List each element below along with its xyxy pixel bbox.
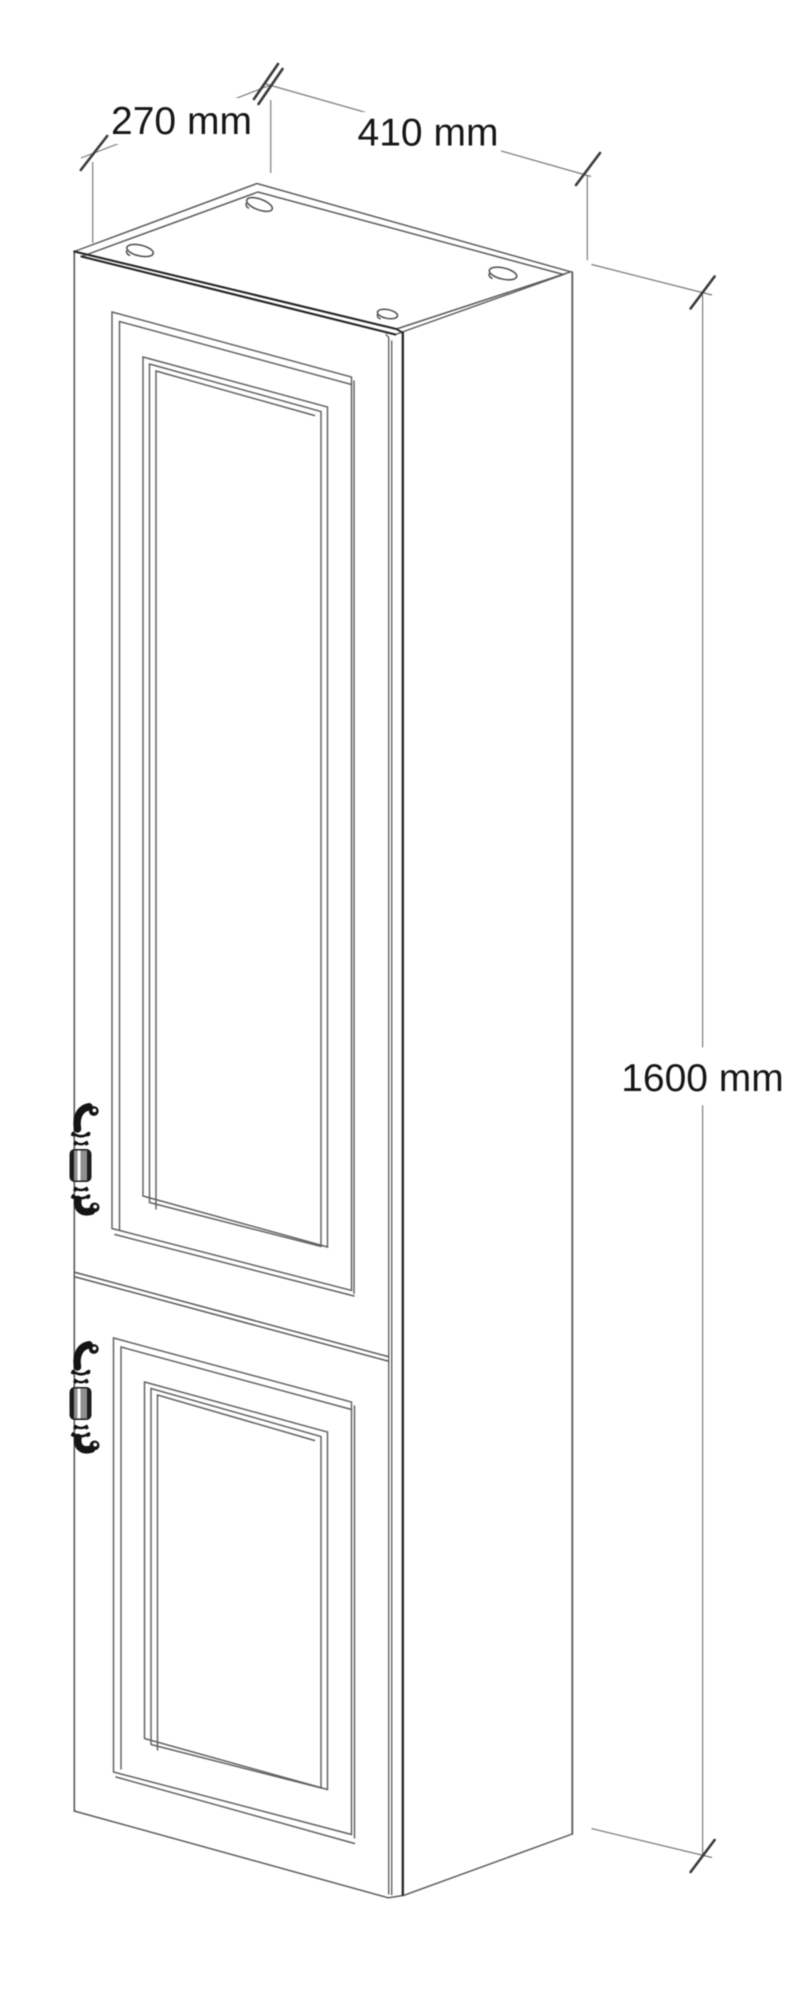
svg-text:270 mm: 270 mm xyxy=(111,100,252,143)
svg-text:410 mm: 410 mm xyxy=(358,112,499,155)
svg-text:1600 mm: 1600 mm xyxy=(621,1057,784,1100)
